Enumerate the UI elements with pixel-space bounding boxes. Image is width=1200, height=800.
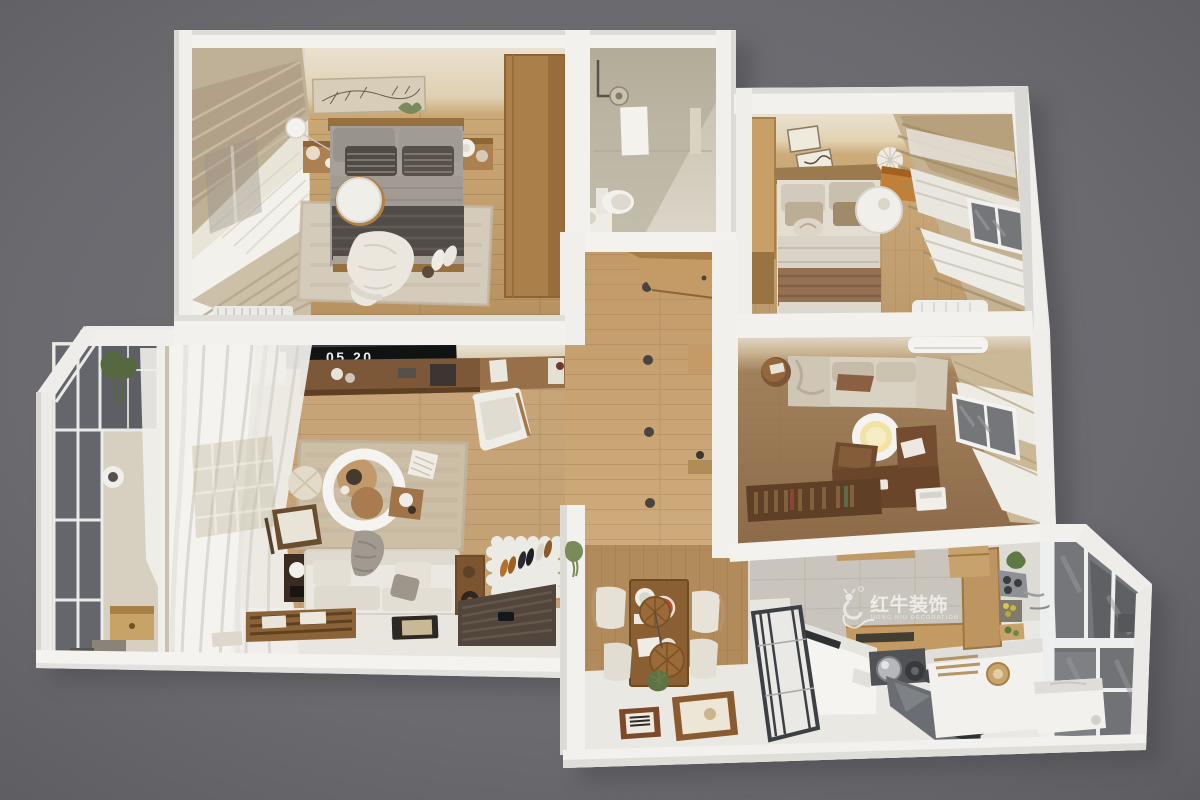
svg-text:HONG NIU DECORATION: HONG NIU DECORATION [871,615,959,621]
svg-text:红牛装饰: 红牛装饰 [870,593,948,616]
